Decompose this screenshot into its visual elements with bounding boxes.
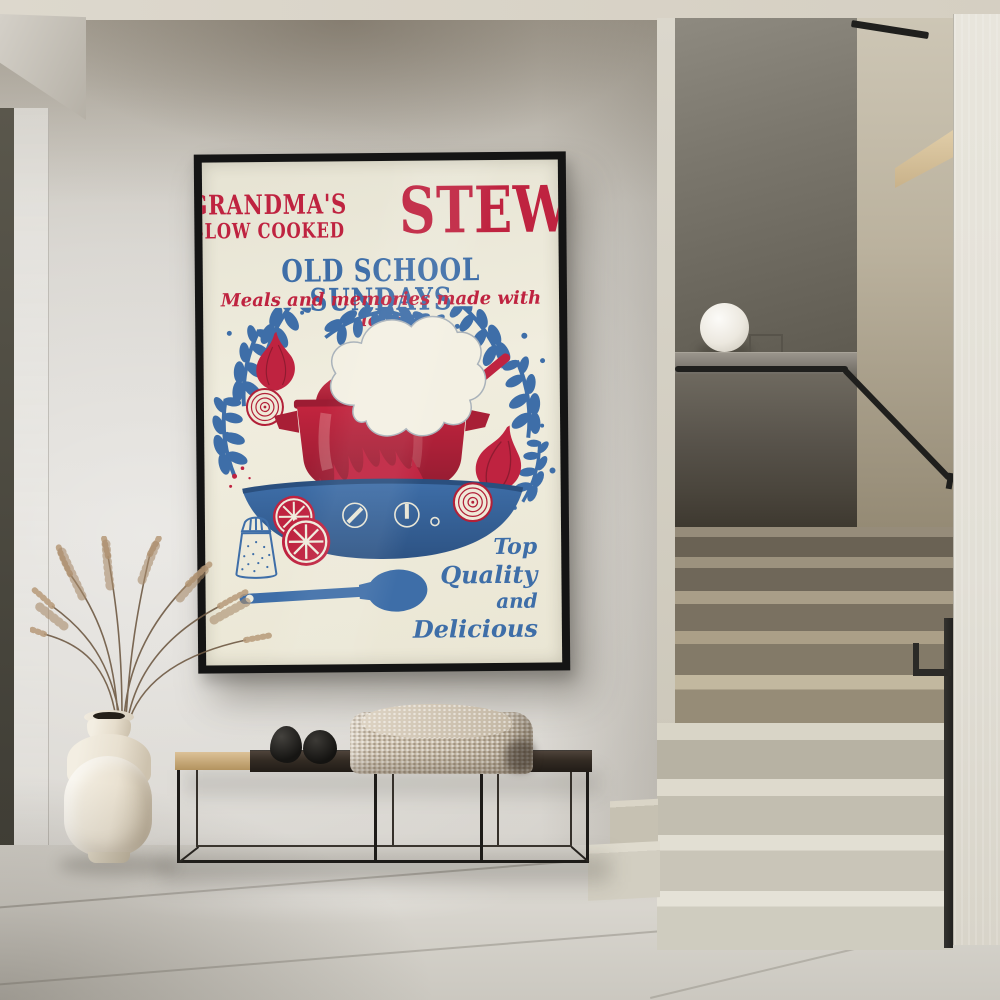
landing-mini-rail [749,334,783,354]
poster-heading: GRANDMA'S SLOW COOKED STEW [202,184,558,240]
bench-front-bar [177,860,589,863]
bench-back-bar [196,845,572,847]
right-wall-column [953,14,1000,945]
bench-leg [177,770,180,863]
poster-title-top: GRANDMA'S [202,193,369,220]
handrail-horizontal [675,366,848,372]
interior-scene: GRANDMA'S SLOW COOKED STEW OLD SCHOOL SU… [0,0,1000,1000]
rail-bracket [913,643,951,676]
bench-back-leg [392,768,394,847]
stair-step [675,591,953,631]
vase-foot [88,852,130,863]
door-frame-strip [0,108,14,848]
bench-leg [480,770,483,863]
decorative-stone [270,726,302,763]
sphere-lamp [700,303,749,352]
stair-step [657,835,953,891]
stair-step [657,779,953,835]
bench-leg [374,770,377,863]
landing-half-wall [675,374,857,530]
stair-step [675,631,953,675]
stair-platform-upper [610,799,658,847]
vase-body [64,756,152,856]
stair-step [675,675,953,723]
stair-step [657,723,953,779]
stair-step [675,527,953,557]
footer-line: Delicious [413,615,538,643]
bench-back-leg [196,768,198,847]
bench-leg [586,770,589,863]
bench-back-leg [570,768,572,847]
upper-landing-wall [675,18,857,355]
bench-back-leg [497,768,499,847]
poster-footer: Top Quality and Delicious [412,534,538,643]
footer-line: Top [412,534,537,562]
stair-step [675,557,953,591]
poster-title-main: STEW [375,184,562,238]
stairwell [657,18,953,950]
footer-line: Quality [412,561,537,589]
pampas-grass [30,536,300,722]
stair-step [657,891,953,950]
decorative-stone [303,730,337,764]
footer-line: and [413,588,538,616]
bench-top-oak [175,752,250,770]
poster-title-sub: SLOW COOKED [202,220,370,241]
glass-panel [14,108,49,847]
knitted-throw-fold [362,704,512,738]
throw-shadow-edge [505,740,535,772]
